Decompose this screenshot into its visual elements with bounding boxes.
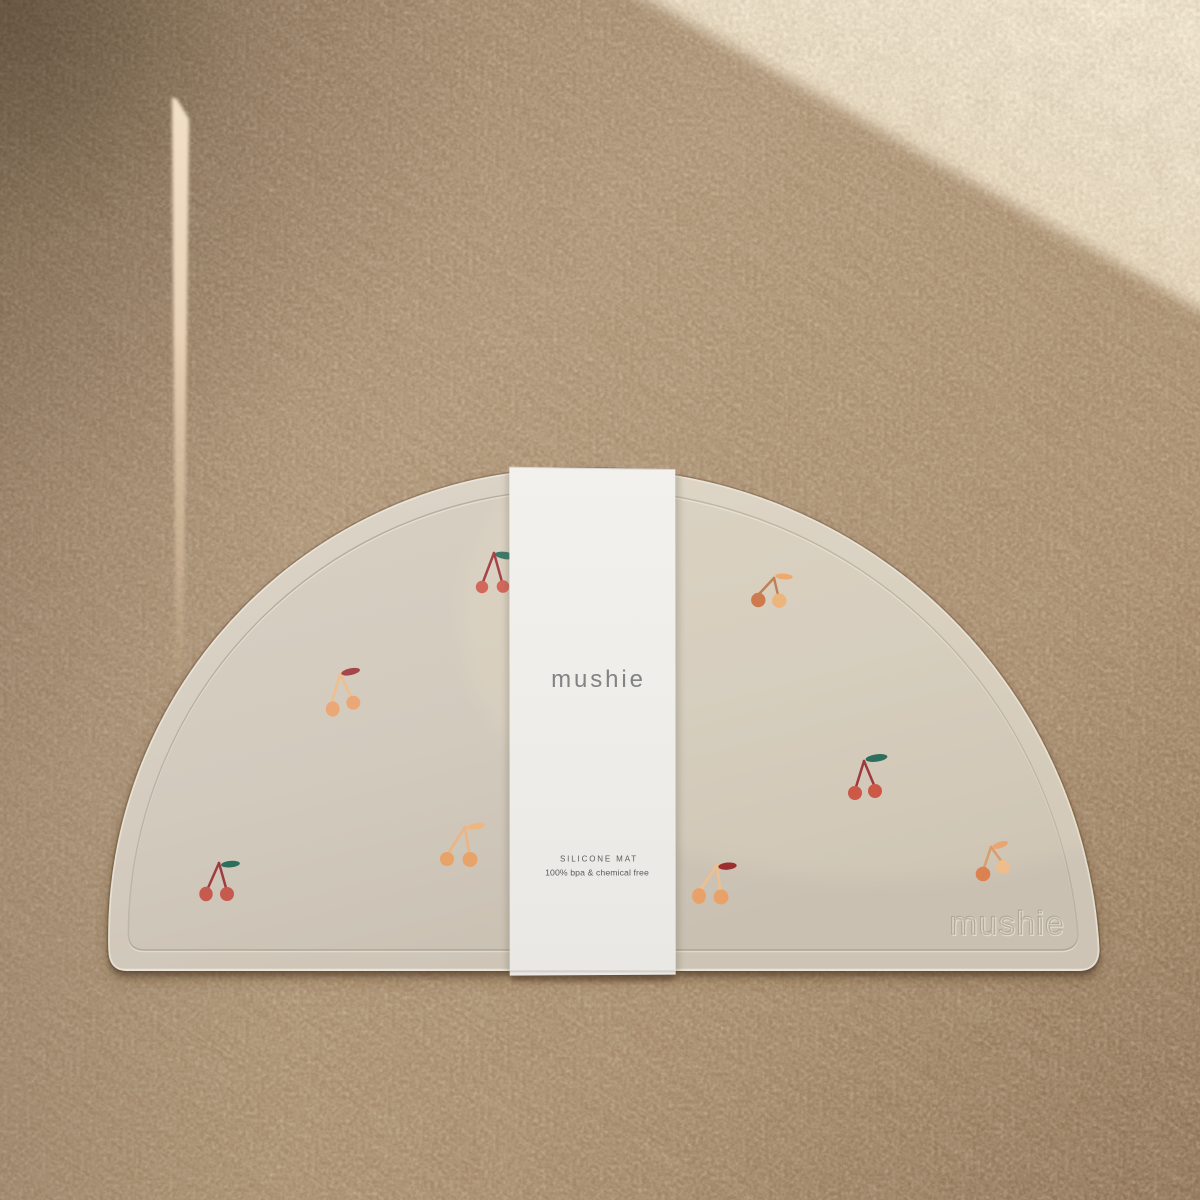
svg-text:SILICONE MAT: SILICONE MAT bbox=[560, 855, 638, 864]
svg-text:mushie: mushie bbox=[949, 904, 1064, 941]
svg-text:100% bpa & chemical free: 100% bpa & chemical free bbox=[545, 868, 649, 878]
svg-text:mushie: mushie bbox=[551, 666, 646, 693]
